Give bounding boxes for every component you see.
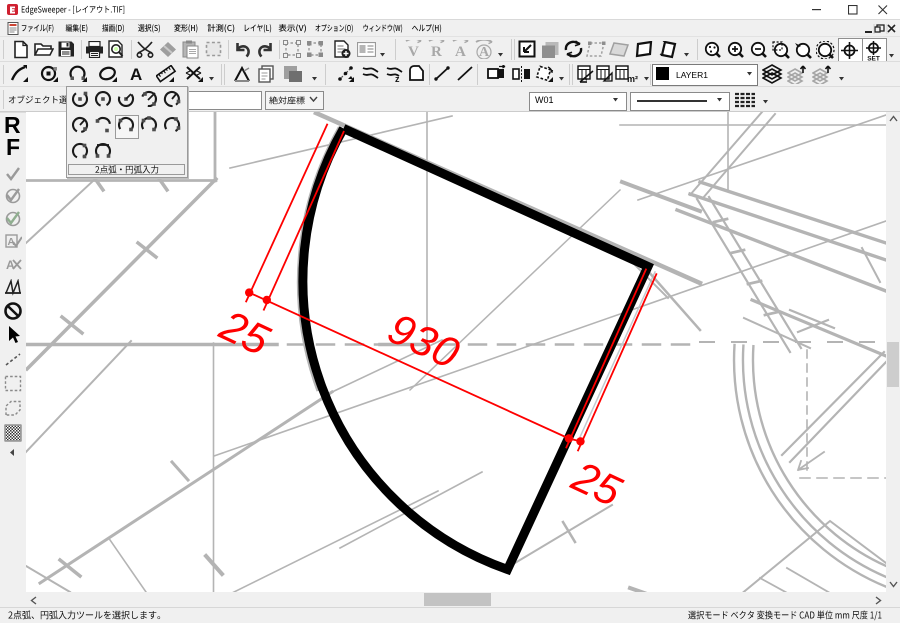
- svg-text:A: A: [455, 44, 466, 59]
- svg-text:V: V: [408, 44, 419, 59]
- svg-text:R: R: [431, 44, 442, 59]
- svg-text:m²: m²: [627, 74, 638, 83]
- svg-text:A: A: [130, 65, 142, 83]
- svg-text:z: z: [395, 74, 400, 83]
